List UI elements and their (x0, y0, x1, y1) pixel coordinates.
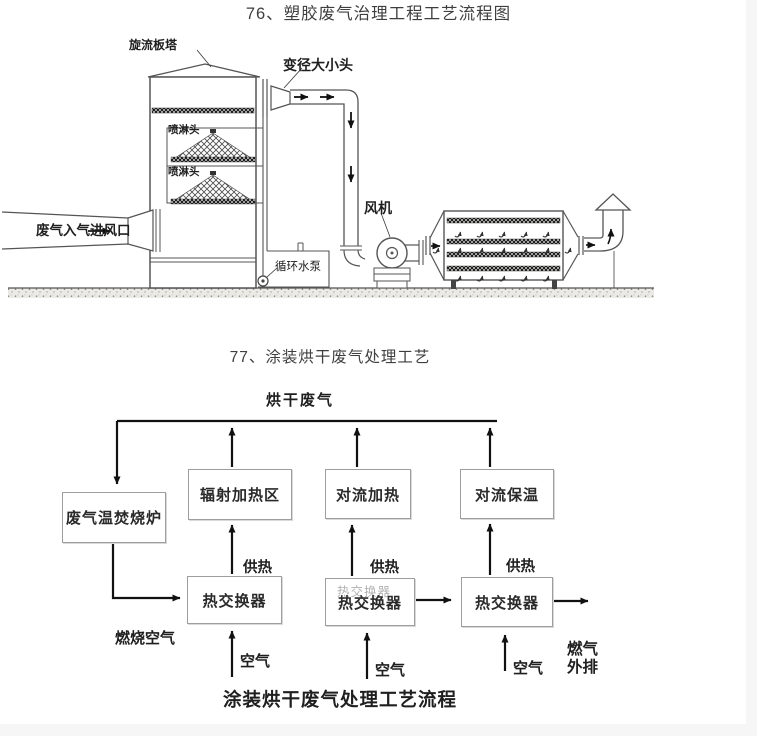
box-incinerator: 废气温焚烧炉 (62, 492, 166, 543)
box-heat-exchanger-1: 热交换器 (187, 576, 282, 624)
fig77-title: 77、涂装烘干废气处理工艺 (0, 345, 660, 367)
label-cyclone-tower: 旋流板塔 (129, 36, 177, 53)
label-heat-supply-2: 供热 (370, 556, 399, 577)
fig76-scrubber-tower (148, 50, 260, 288)
box-convection-holding: 对流保温 (460, 469, 554, 519)
label-combustion-air: 燃烧空气 (115, 627, 175, 648)
label-reducer: 变径大小头 (283, 55, 353, 75)
label-exhaust-gas-out: 燃气 外排 (567, 641, 598, 677)
fig76-stack (584, 194, 630, 288)
box-radiant-heating-zone: 辐射加热区 (188, 469, 292, 520)
label-circulating-pump: 循环水泵 (275, 258, 321, 274)
label-air-2: 空气 (375, 659, 405, 680)
page-right-margin (746, 0, 757, 736)
box-heat-exchanger-3: 热交换器 (461, 577, 553, 627)
fig77-flow-lines (113, 421, 588, 679)
box-convection-heating: 对流加热 (325, 469, 411, 519)
fig76-carbon-adsorber (426, 211, 583, 289)
label-gas-inlet: 废气入气进风口 (36, 219, 131, 239)
label-exhaust-gas-line1: 燃气 (567, 641, 598, 659)
label-fan: 风机 (364, 198, 392, 218)
fig76-fan (340, 213, 423, 288)
fig77-caption: 涂装烘干废气处理工艺流程 (120, 686, 560, 712)
fig76-ground (8, 288, 654, 298)
label-heat-supply-3: 供热 (506, 555, 535, 576)
box-heat-exchanger-2-ghost-text: 热交换器 (337, 581, 391, 600)
page-bottom-margin (0, 724, 757, 736)
fig76-title: 76、塑胶废气治理工程工艺流程图 (0, 0, 757, 24)
label-air-1: 空气 (240, 650, 270, 671)
fig76-outlet-pipe (263, 68, 358, 281)
document-page: 76、塑胶废气治理工程工艺流程图 旋流板塔 变径大小头 喷淋头 喷淋头 废气入气… (0, 0, 757, 736)
label-air-3: 空气 (513, 657, 543, 678)
label-spray-head-1: 喷淋头 (168, 122, 200, 137)
label-drying-waste-gas: 烘干废气 (266, 389, 334, 410)
label-spray-head-2: 喷淋头 (168, 164, 200, 179)
label-heat-supply-1: 供热 (243, 556, 272, 577)
label-exhaust-gas-line2: 外排 (567, 659, 598, 677)
